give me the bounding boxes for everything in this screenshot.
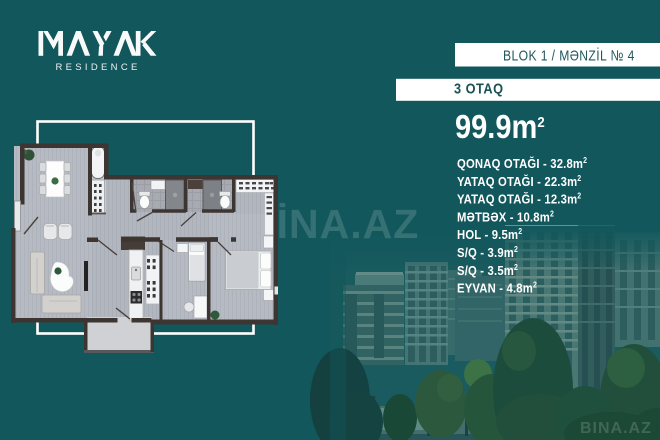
svg-text:BINA.AZ: BINA.AZ xyxy=(580,420,652,437)
svg-text:HOL - 9.5m2: HOL - 9.5m2 xyxy=(457,227,522,243)
svg-text:99.9m2: 99.9m2 xyxy=(455,108,545,145)
svg-text:RESIDENCE: RESIDENCE xyxy=(56,62,141,73)
svg-text:MƏTBƏX - 10.8m2: MƏTBƏX - 10.8m2 xyxy=(457,209,554,225)
svg-text:S/Q - 3.9m2: S/Q - 3.9m2 xyxy=(457,245,518,261)
svg-text:YATAQ OTAĞI - 22.3m2: YATAQ OTAĞI - 22.3m2 xyxy=(457,173,581,189)
svg-text:YATAQ OTAĞI - 12.3m2: YATAQ OTAĞI - 12.3m2 xyxy=(457,191,581,207)
svg-text:BLOK 1 / MƏNZİL № 4: BLOK 1 / MƏNZİL № 4 xyxy=(503,47,635,63)
svg-text:EYVAN - 4.8m2: EYVAN - 4.8m2 xyxy=(457,280,537,296)
svg-text:QONAQ OTAĞI - 32.8m2: QONAQ OTAĞI - 32.8m2 xyxy=(457,155,587,171)
svg-text:3 OTAQ: 3 OTAQ xyxy=(454,79,504,96)
svg-text:S/Q - 3.5m2: S/Q - 3.5m2 xyxy=(457,262,518,278)
